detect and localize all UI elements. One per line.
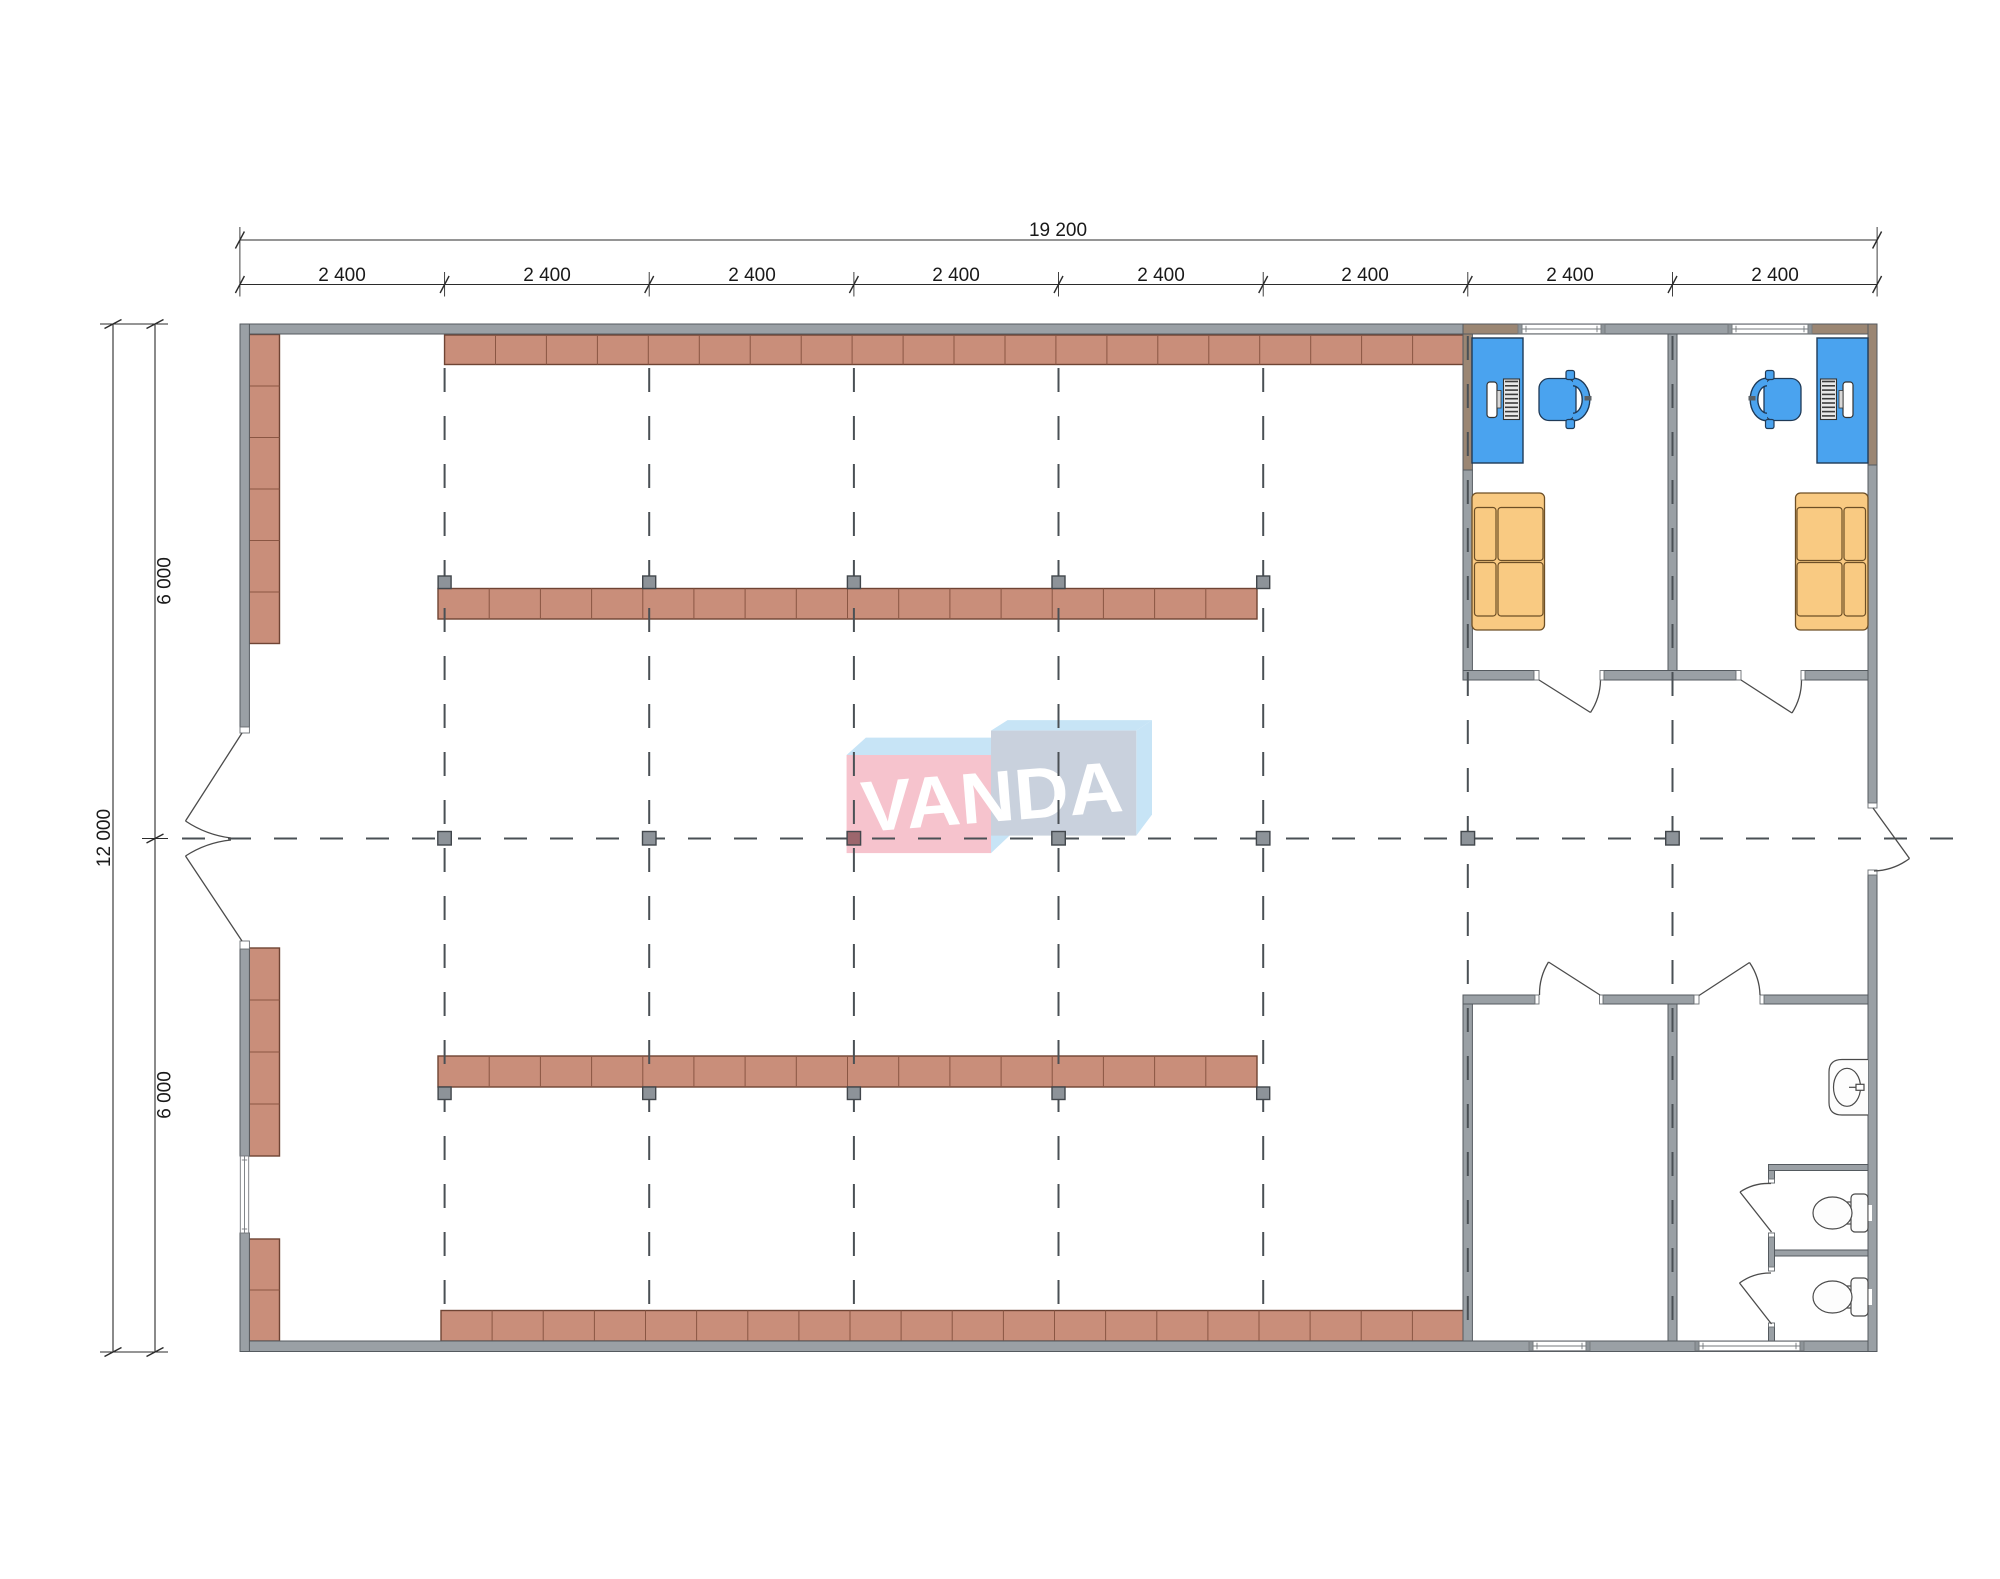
svg-text:12 000: 12 000 (94, 809, 115, 867)
svg-text:2 400: 2 400 (728, 265, 776, 286)
svg-text:2 400: 2 400 (523, 265, 571, 286)
svg-text:2 400: 2 400 (1137, 265, 1185, 286)
svg-text:6 000: 6 000 (155, 1071, 176, 1119)
svg-text:2 400: 2 400 (1751, 265, 1799, 286)
svg-text:2 400: 2 400 (1341, 265, 1389, 286)
svg-text:6 000: 6 000 (155, 557, 176, 605)
svg-text:2 400: 2 400 (1546, 265, 1594, 286)
svg-text:2 400: 2 400 (932, 265, 980, 286)
svg-text:19 200: 19 200 (1029, 220, 1087, 241)
svg-text:2 400: 2 400 (318, 265, 366, 286)
